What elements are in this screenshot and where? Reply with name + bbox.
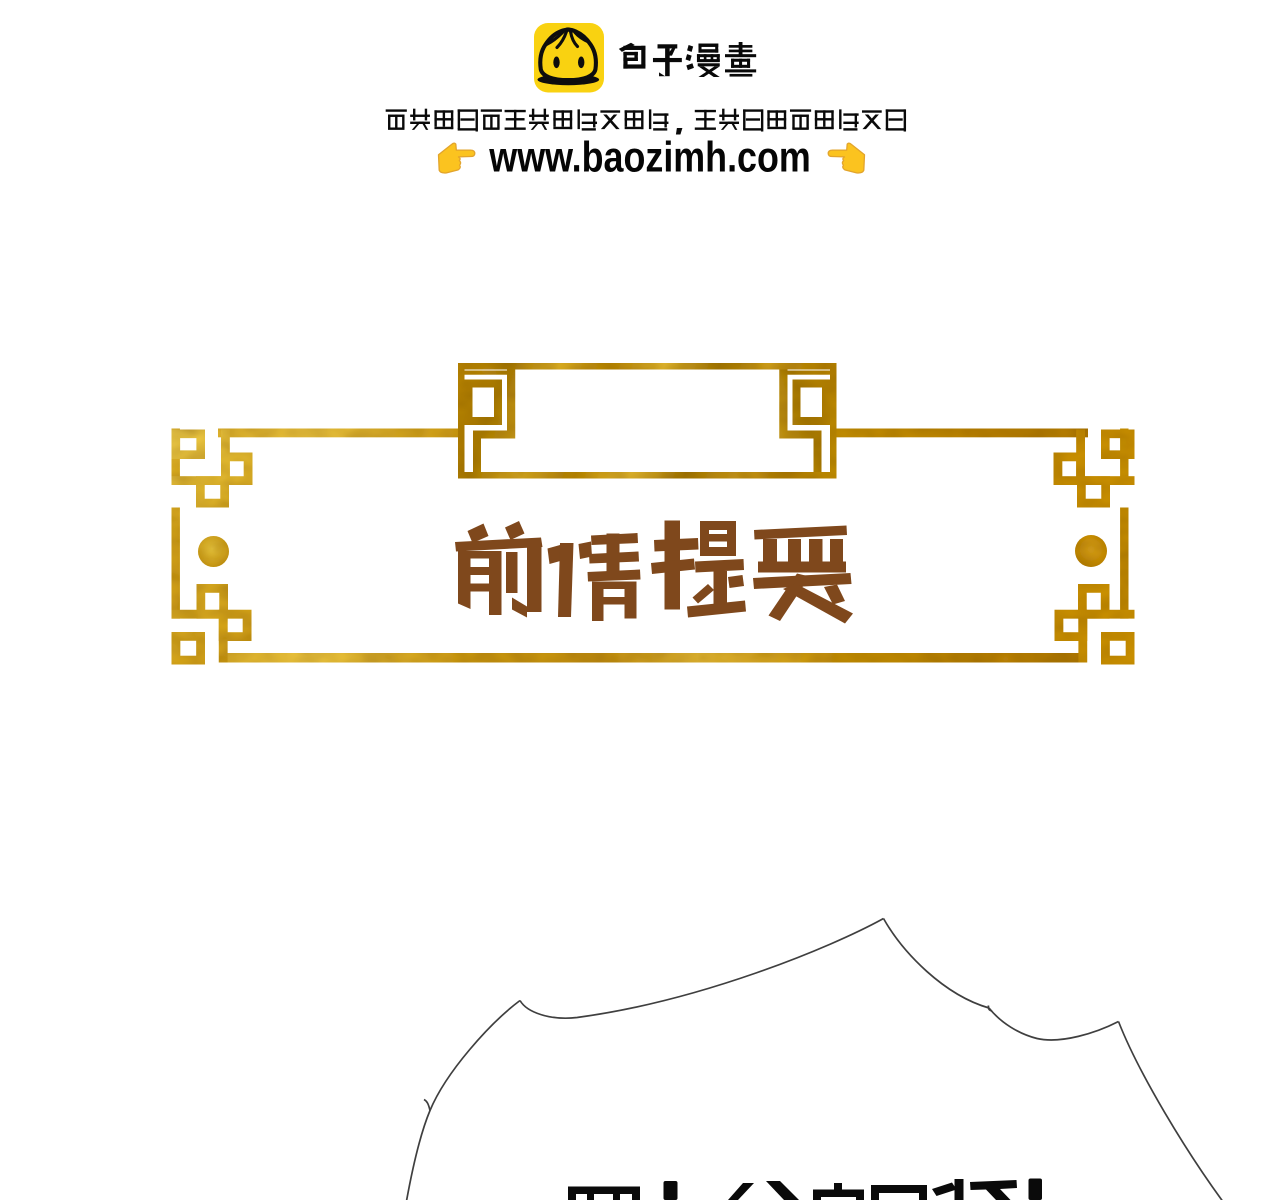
svg-text:www.baozimh.com: www.baozimh.com [488,133,810,181]
